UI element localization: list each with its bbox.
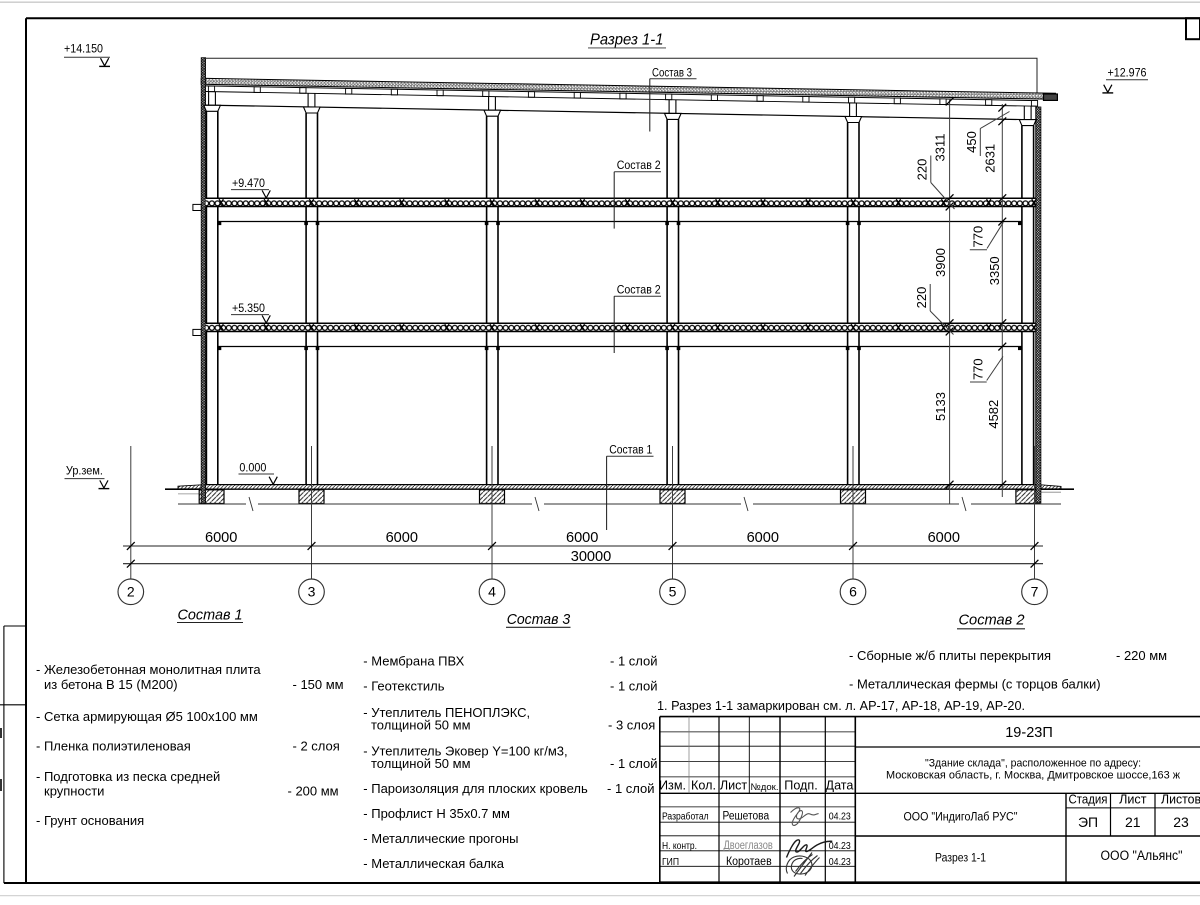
svg-text:- Железобетонная монолитная п: - Железобетонная монолитная плита [36, 662, 261, 677]
svg-text:04.23: 04.23 [829, 857, 851, 868]
svg-text:- 1 слой: - 1 слой [610, 679, 658, 694]
svg-text:19-23П: 19-23П [1005, 725, 1053, 741]
svg-text:ООО "ИндигоЛаб РУС": ООО "ИндигоЛаб РУС" [904, 810, 1018, 824]
svg-text:Н. контр.: Н. контр. [662, 841, 697, 852]
svg-text:0.000: 0.000 [239, 460, 266, 474]
svg-text:- Профлист Н 35х0.7 мм: - Профлист Н 35х0.7 мм [363, 806, 510, 821]
svg-text:Состав 2: Состав 2 [617, 282, 661, 296]
svg-text:Московская область, г. Москва,: Московская область, г. Москва, Дмитровск… [886, 770, 1181, 782]
svg-text:Решетова: Решетова [723, 811, 770, 823]
svg-text:- Геотекстиль: - Геотекстиль [363, 679, 444, 694]
svg-text:ЭП: ЭП [1078, 814, 1098, 830]
svg-text:770: 770 [970, 358, 985, 380]
svg-text:- 1 слой: - 1 слой [610, 654, 658, 669]
svg-text:- 1 слой: - 1 слой [607, 781, 655, 796]
svg-text:3350: 3350 [987, 256, 1002, 285]
svg-text:- Мембрана ПВХ: - Мембрана ПВХ [363, 654, 464, 669]
svg-text:Лист: Лист [720, 778, 748, 792]
svg-text:5: 5 [669, 584, 677, 600]
svg-text:Кол.: Кол. [691, 778, 716, 792]
svg-text:30000: 30000 [571, 549, 612, 565]
svg-text:6000: 6000 [747, 530, 779, 546]
svg-text:ООО "Альянс": ООО "Альянс" [1101, 848, 1183, 863]
svg-text:- Металлические прогоны: - Металлические прогоны [363, 831, 518, 846]
svg-text:5133: 5133 [933, 392, 948, 421]
svg-text:- Подготовка из песка средней: - Подготовка из песка средней [36, 769, 220, 784]
svg-text:4582: 4582 [986, 400, 1001, 429]
svg-text:крупности: крупности [44, 784, 104, 799]
svg-text:Состав 2: Состав 2 [959, 612, 1026, 629]
svg-text:04.23: 04.23 [829, 812, 851, 823]
svg-text:Разрез 1-1: Разрез 1-1 [590, 32, 664, 49]
svg-text:7: 7 [1031, 584, 1039, 600]
svg-text:220: 220 [914, 287, 929, 309]
svg-text:толщиной 50 мм: толщиной 50 мм [371, 718, 471, 733]
svg-text:- 3 слоя: - 3 слоя [608, 718, 655, 733]
svg-text:450: 450 [964, 131, 979, 153]
svg-text:+14.150: +14.150 [64, 42, 103, 56]
svg-text:- Пленка полиэтиленовая: - Пленка полиэтиленовая [36, 739, 191, 754]
svg-text:2: 2 [127, 584, 135, 600]
svg-text:Листов: Листов [1161, 792, 1200, 806]
svg-text:Коротаев: Коротаев [726, 856, 772, 868]
svg-text:из бетона В 15 (М200): из бетона В 15 (М200) [44, 677, 178, 692]
svg-text:6000: 6000 [205, 530, 237, 546]
svg-text:Состав 1: Состав 1 [178, 607, 243, 624]
svg-text:220: 220 [915, 159, 930, 181]
svg-text:- Сборные ж/б плиты перекрытия: - Сборные ж/б плиты перекрытия [849, 648, 1051, 663]
svg-text:- Грунт основания: - Грунт основания [36, 813, 144, 828]
svg-text:3311: 3311 [933, 134, 948, 162]
svg-text:- 1 слой: - 1 слой [610, 756, 658, 771]
svg-text:- 220 мм: - 220 мм [1116, 648, 1167, 663]
svg-text:04.23: 04.23 [829, 841, 851, 852]
svg-text:- 150 мм: - 150 мм [293, 677, 344, 692]
svg-text:Подп.: Подп. [784, 778, 817, 792]
svg-text:Состав 3: Состав 3 [652, 65, 692, 79]
svg-text:Дата: Дата [826, 778, 854, 792]
svg-text:1. Разрез 1-1 замаркирован см.: 1. Разрез 1-1 замаркирован см. л. АР-17,… [657, 699, 1025, 713]
svg-text:+9.470: +9.470 [232, 176, 265, 190]
svg-text:+12.976: +12.976 [1108, 66, 1147, 80]
svg-text:770: 770 [970, 226, 985, 248]
svg-text:Стадия: Стадия [1069, 792, 1108, 806]
svg-text:Изм.: Изм. [659, 778, 686, 792]
svg-text:Двоеглазов: Двоеглазов [724, 840, 773, 852]
svg-text:Разработал: Разработал [662, 810, 709, 822]
svg-text:Ур.зем.: Ур.зем. [66, 464, 103, 478]
svg-text:- Пароизоляция для плоских кро: - Пароизоляция для плоских кровель [363, 781, 588, 796]
svg-text:- 2 слоя: - 2 слоя [293, 739, 340, 754]
svg-text:- Металлическая балка: - Металлическая балка [363, 856, 504, 871]
svg-text:6000: 6000 [928, 530, 960, 546]
svg-text:+5.350: +5.350 [232, 301, 265, 315]
svg-text:Состав 1: Состав 1 [609, 442, 652, 456]
svg-text:Разрез 1-1: Разрез 1-1 [935, 851, 986, 865]
svg-text:- Сетка армирующая Ø5 100х100: - Сетка армирующая Ø5 100х100 мм [36, 709, 258, 724]
svg-text:Состав 2: Состав 2 [617, 158, 661, 172]
svg-text:Лист: Лист [1119, 792, 1147, 806]
svg-text:- Металлическая фермы (с торцо: - Металлическая фермы (с торцов балки) [849, 677, 1101, 692]
svg-text:21: 21 [1125, 814, 1141, 830]
svg-text:толщиной 50 мм: толщиной 50 мм [371, 756, 471, 771]
svg-text:6000: 6000 [566, 530, 598, 546]
svg-text:"Здание склада", расположенное: "Здание склада", расположенное по адресу… [925, 758, 1141, 770]
svg-text:23: 23 [1173, 814, 1189, 830]
svg-text:3: 3 [308, 584, 316, 600]
svg-text:2631: 2631 [982, 144, 997, 173]
svg-text:4: 4 [488, 584, 496, 600]
svg-text:6000: 6000 [386, 530, 418, 546]
svg-text:6: 6 [849, 584, 857, 600]
svg-text:ГИП: ГИП [662, 857, 679, 868]
svg-text:3900: 3900 [933, 248, 948, 277]
svg-text:- 200 мм: - 200 мм [288, 784, 339, 799]
svg-text:Состав 3: Состав 3 [507, 611, 571, 628]
svg-text:№док.: №док. [751, 782, 779, 793]
